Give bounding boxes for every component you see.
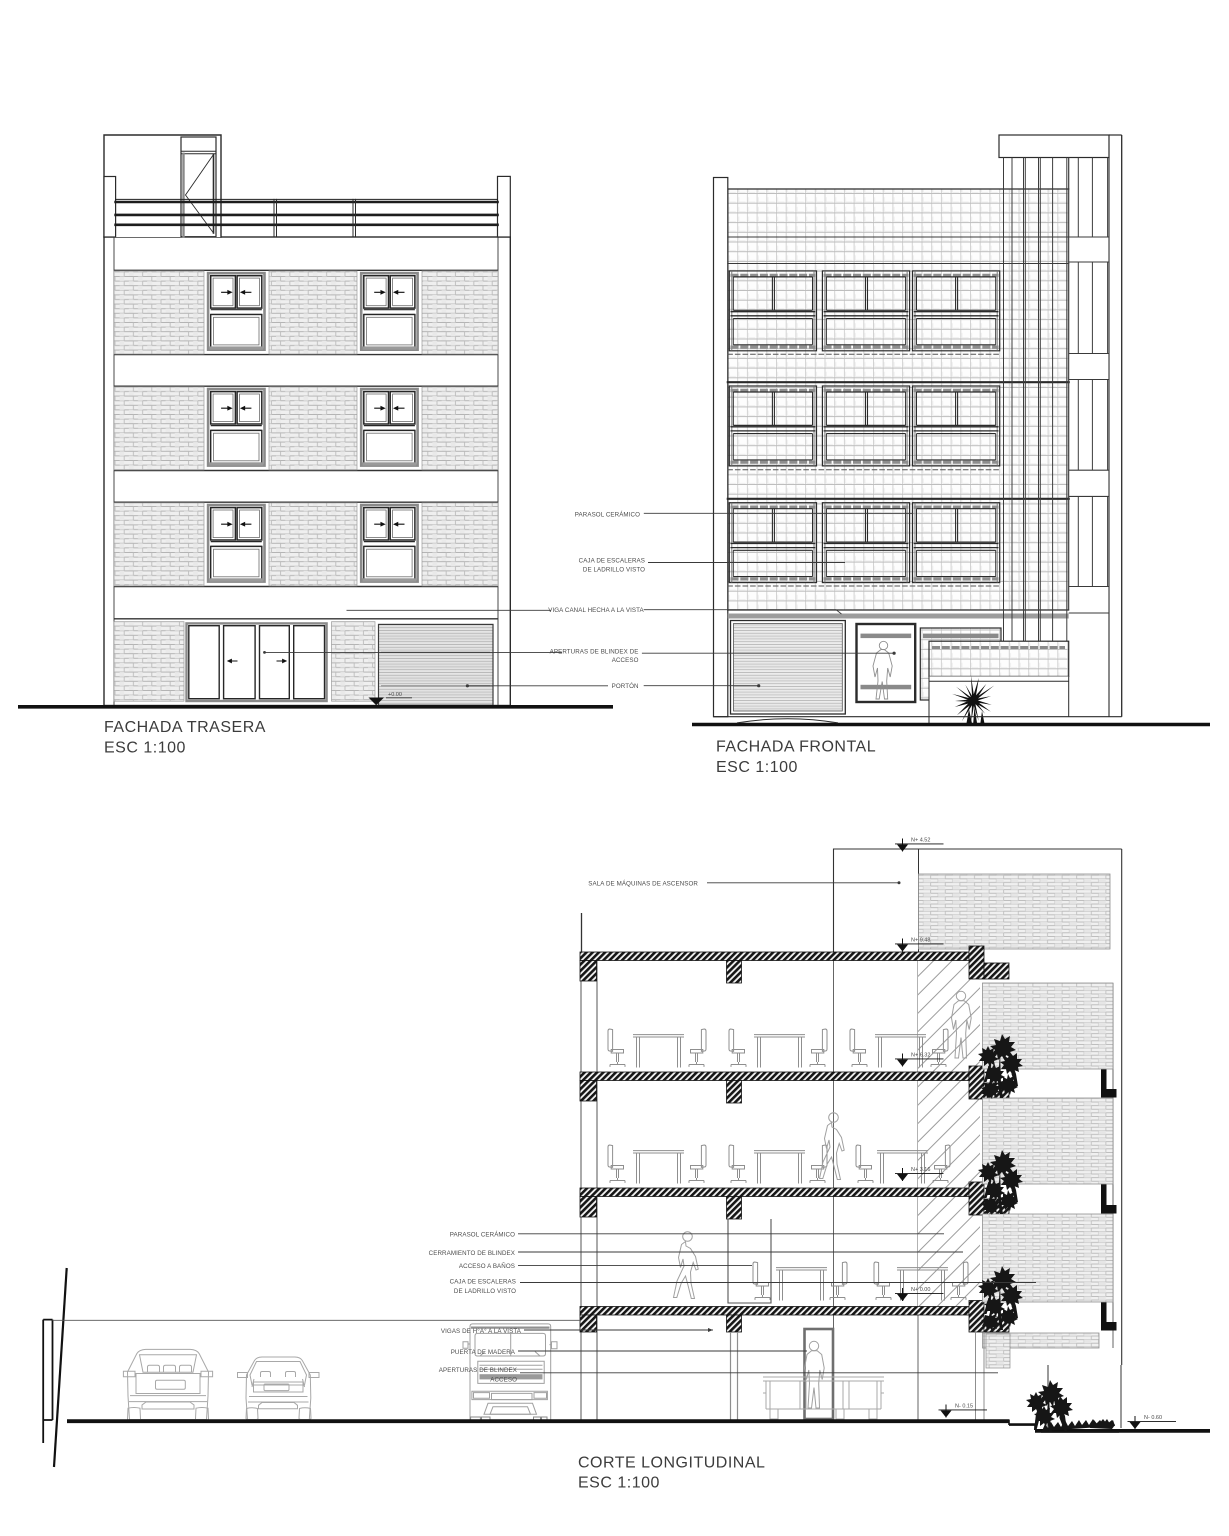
svg-text:FACHADA FRONTAL: FACHADA FRONTAL (716, 739, 876, 756)
svg-text:+0.00: +0.00 (388, 692, 402, 698)
svg-text:DE LADRILLO VISTO: DE LADRILLO VISTO (583, 567, 645, 574)
svg-text:PARASOL CERÁMICO: PARASOL CERÁMICO (575, 512, 640, 519)
svg-text:ACCESO A BAÑOS: ACCESO A BAÑOS (459, 1263, 515, 1270)
svg-text:ESC 1:100: ESC 1:100 (716, 759, 798, 776)
svg-text:CORTE LONGITUDINAL: CORTE LONGITUDINAL (578, 1454, 765, 1471)
svg-text:PORTÓN: PORTÓN (612, 683, 639, 690)
svg-text:DE LADRILLO VISTO: DE LADRILLO VISTO (454, 1288, 516, 1295)
svg-text:N+ 3.16: N+ 3.16 (911, 1167, 930, 1173)
svg-text:APERTURAS DE BLINDEX DE: APERTURAS DE BLINDEX DE (550, 649, 639, 656)
svg-text:N+ 4.52: N+ 4.52 (911, 838, 930, 844)
svg-text:CERRAMIENTO DE BLINDEX: CERRAMIENTO DE BLINDEX (429, 1250, 515, 1257)
svg-text:N- 0.60: N- 0.60 (1144, 1415, 1162, 1421)
svg-text:N+ 0.00: N+ 0.00 (911, 1287, 930, 1293)
svg-text:PUERTA DE MADERA: PUERTA DE MADERA (451, 1349, 516, 1356)
svg-text:ESC 1:100: ESC 1:100 (104, 739, 186, 756)
svg-text:VIGAS DE H°A° A LA VISTA: VIGAS DE H°A° A LA VISTA (441, 1328, 522, 1335)
svg-text:APERTURAS DE BLINDEX: APERTURAS DE BLINDEX (439, 1367, 517, 1374)
svg-text:N- 0.15: N- 0.15 (955, 1404, 973, 1410)
svg-text:SALA DE MÁQUINAS DE ASCENSOR: SALA DE MÁQUINAS DE ASCENSOR (588, 881, 698, 888)
svg-text:ACCESO: ACCESO (612, 657, 639, 664)
svg-text:FACHADA TRASERA: FACHADA TRASERA (104, 719, 266, 736)
svg-text:ESC 1:100: ESC 1:100 (578, 1475, 660, 1492)
svg-text:CAJA DE ESCALERAS: CAJA DE ESCALERAS (450, 1279, 516, 1286)
svg-text:CAJA DE ESCALERAS: CAJA DE ESCALERAS (579, 558, 645, 565)
svg-text:PARASOL CERÁMICO: PARASOL CERÁMICO (450, 1232, 515, 1239)
svg-text:N+ 9.48: N+ 9.48 (911, 938, 930, 944)
svg-text:N+ 6.32: N+ 6.32 (911, 1053, 930, 1059)
svg-text:ACCESO: ACCESO (490, 1377, 517, 1384)
svg-text:VIGA CANAL HECHA A LA VISTA: VIGA CANAL HECHA A LA VISTA (548, 607, 644, 614)
